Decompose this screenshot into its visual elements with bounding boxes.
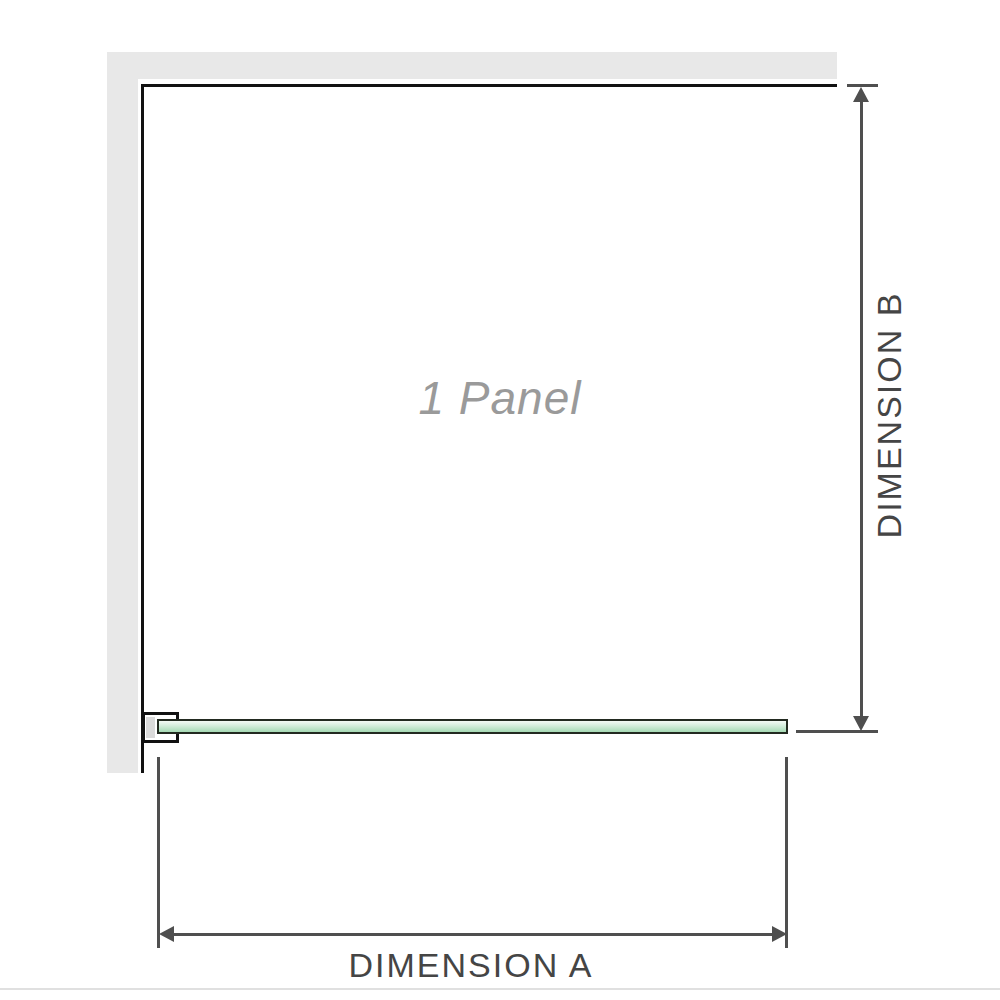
dimension-b-line — [860, 96, 863, 723]
arrow-down-icon — [853, 716, 869, 731]
panel-outline-left — [141, 84, 144, 773]
wall-top — [107, 52, 837, 79]
bracket-pad — [146, 717, 155, 738]
arrow-right-icon — [772, 926, 787, 942]
dimension-a-label: DIMENSION A — [349, 946, 594, 985]
dimension-b-label: DIMENSION B — [870, 292, 909, 539]
panel-outline-top — [141, 84, 837, 87]
glass-panel — [157, 719, 788, 734]
arrow-left-icon — [159, 926, 174, 942]
dimension-a-extension-left — [157, 757, 160, 948]
dimension-a-line — [166, 933, 781, 936]
arrow-up-icon — [853, 87, 869, 102]
dimension-a-extension-right — [785, 757, 788, 948]
shower-panel-diagram: 1 Panel DIMENSION B DIMENSION A — [0, 0, 1000, 1000]
page-baseline — [0, 988, 1000, 990]
panel-count-label: 1 Panel — [418, 371, 581, 425]
wall-left — [107, 52, 138, 773]
